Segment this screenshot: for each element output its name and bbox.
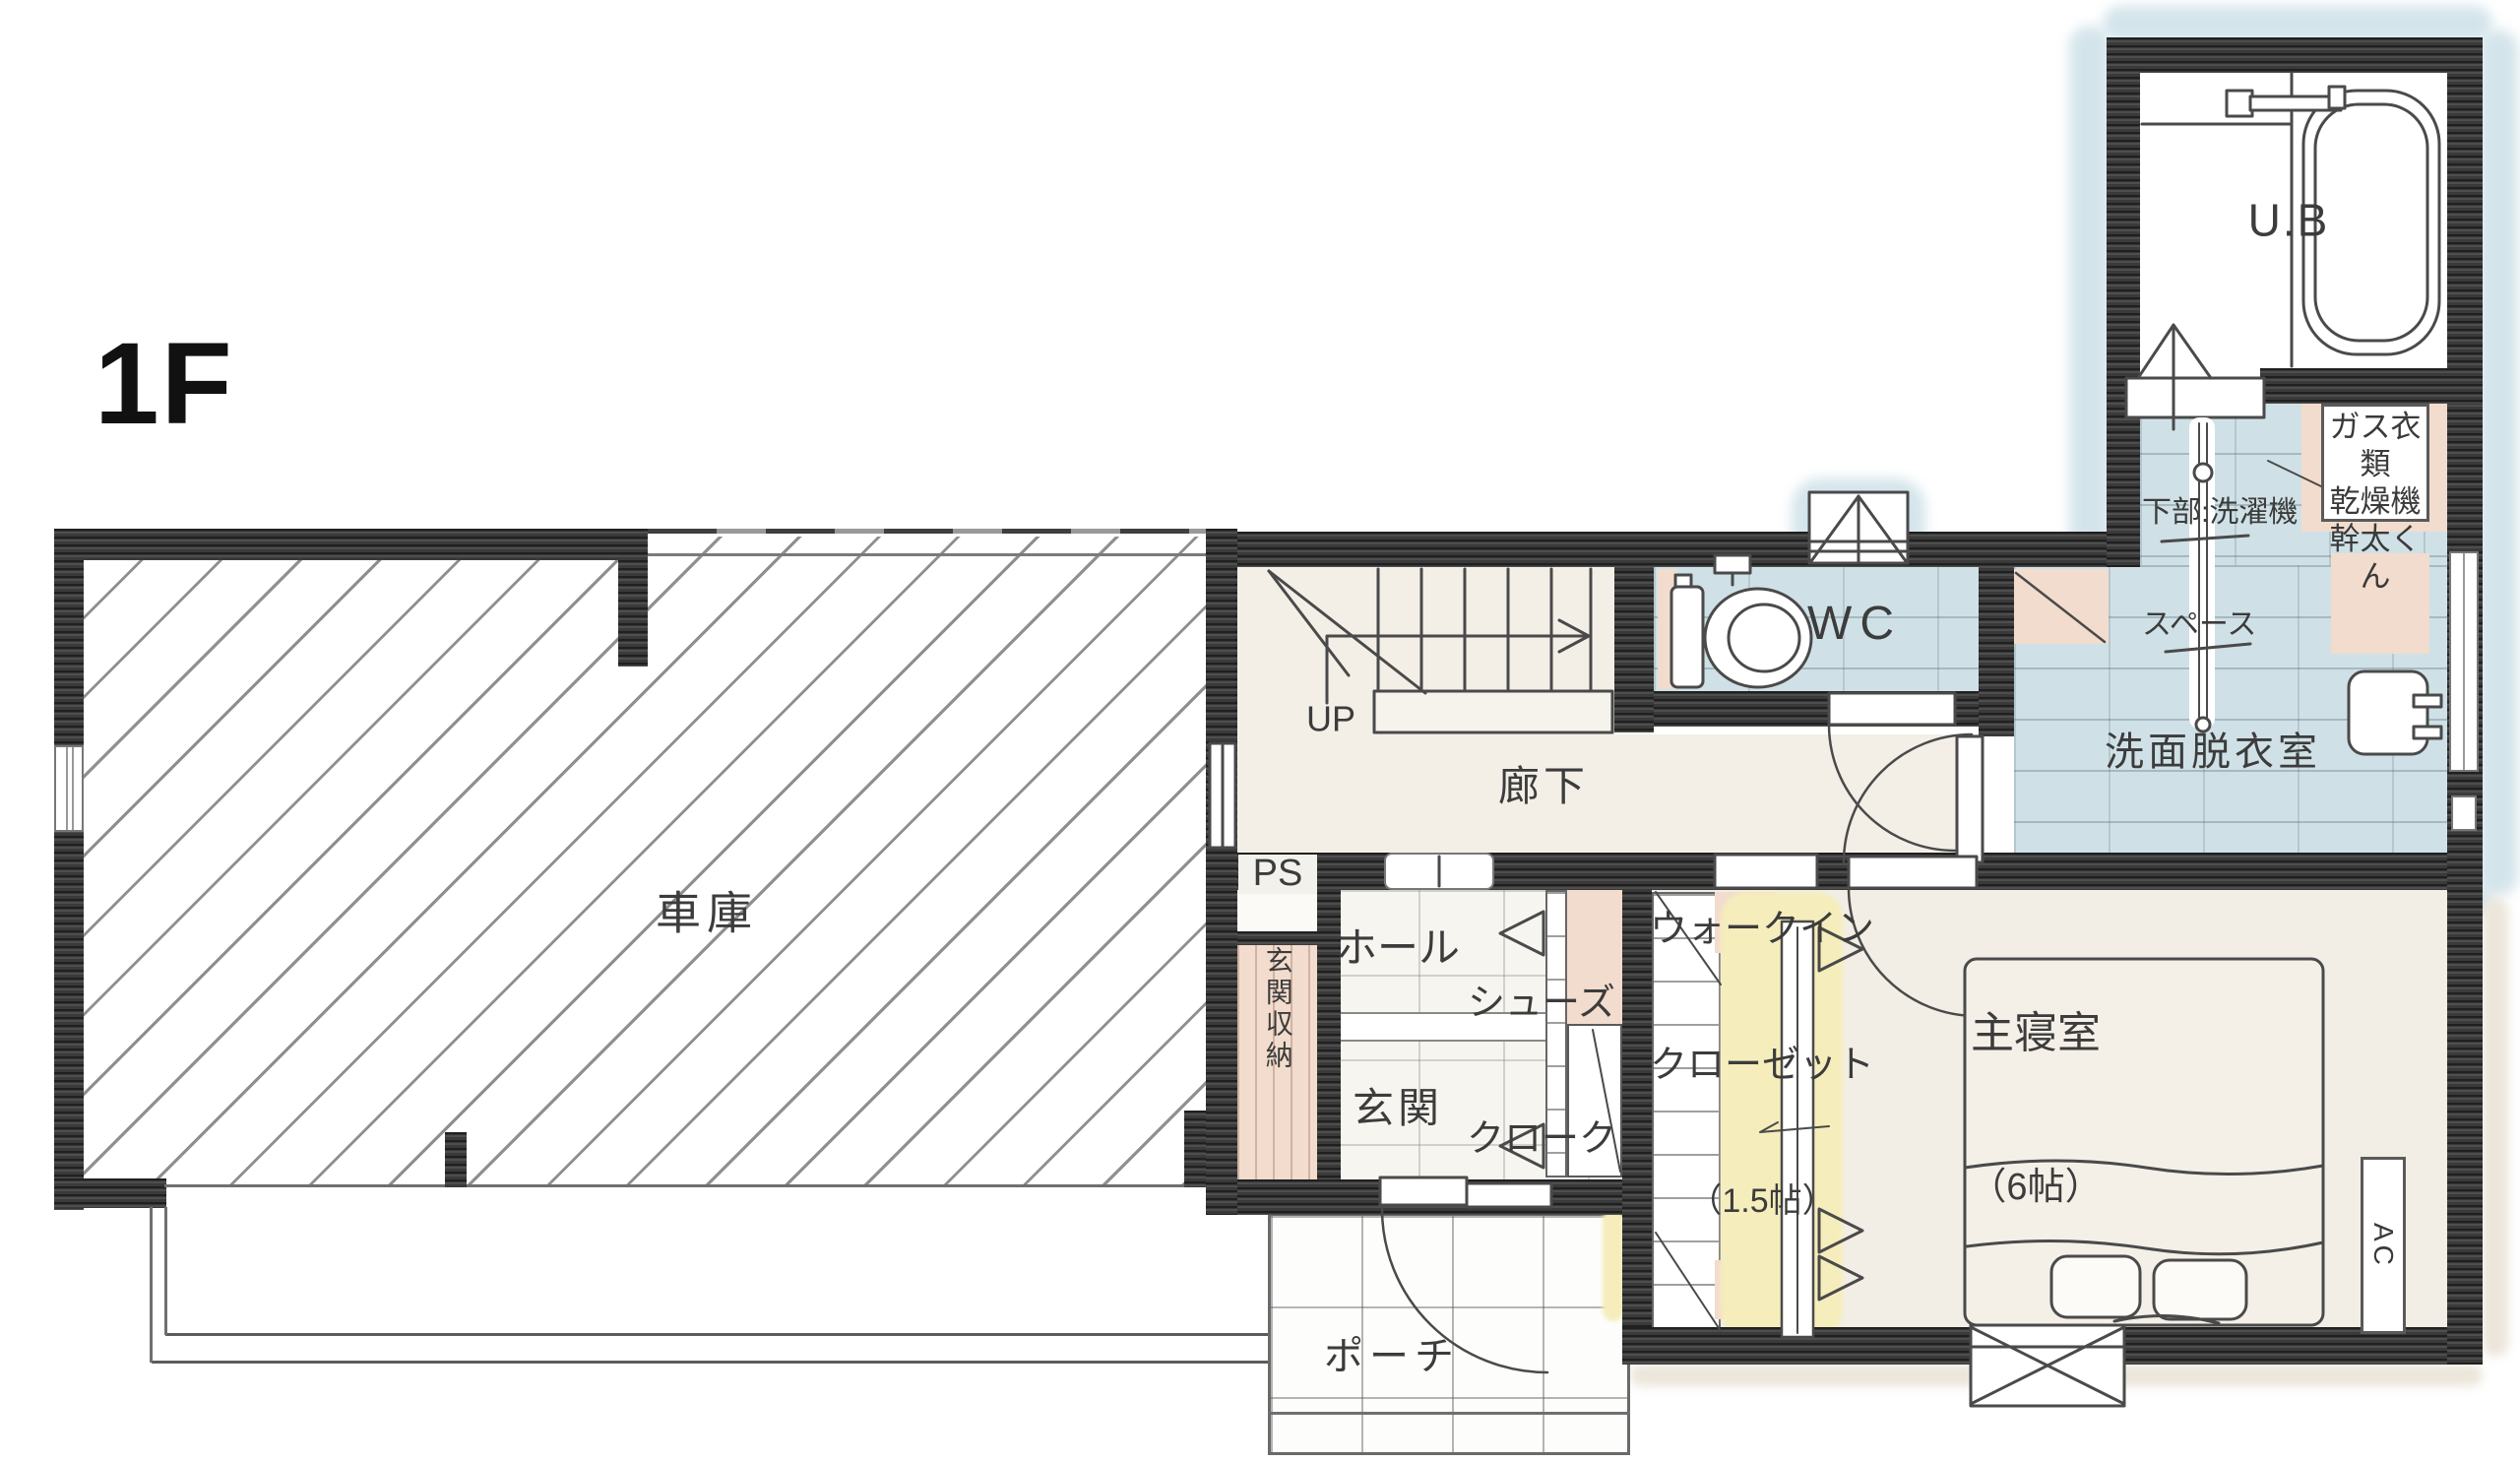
laundry-note-line2: スペース xyxy=(2142,606,2298,644)
bedroom-size: （6帖） xyxy=(1969,1162,2102,1213)
room-label-shoe-closet: シューズ クローク xyxy=(1467,890,1616,1252)
dryer-label-line1: ガス衣類 xyxy=(2324,409,2426,483)
watercolor-bath-top xyxy=(2103,6,2492,41)
driveway-line-v1 xyxy=(150,1207,153,1363)
south-wall xyxy=(1622,1327,2483,1365)
laundry-space-note: 下部:洗濯機 スペース xyxy=(2142,419,2298,719)
room-label-corridor: 廊下 xyxy=(1498,762,1589,811)
bath-right-wall xyxy=(2447,37,2483,404)
driveway-line-v2 xyxy=(164,1207,167,1335)
ps-right-wall xyxy=(1317,853,1341,1179)
dryer-label-line2: 乾燥機 xyxy=(2324,483,2426,521)
dryer-unit: ガス衣類 乾燥機 幹太くん xyxy=(2321,404,2429,522)
watercolor-bottom-wall xyxy=(1630,1365,2483,1386)
watercolor-bath-left xyxy=(2069,26,2110,565)
dryer-label-line3: 幹太くん xyxy=(2324,521,2426,596)
garage-top-pillar xyxy=(618,529,648,667)
wc-bottom-wall xyxy=(1654,691,1981,727)
stairs-floor xyxy=(1237,565,1614,736)
washroom-east-window2 xyxy=(2451,795,2477,831)
watercolor-right-low xyxy=(2483,898,2508,1357)
garage-right-wall xyxy=(1206,529,1237,1215)
ac-unit: AC xyxy=(2361,1157,2406,1334)
bath-bottom-wall xyxy=(2260,368,2483,404)
ac-label: AC xyxy=(2367,1223,2399,1269)
room-label-wc: WC xyxy=(1807,596,1902,653)
bath-top-wall xyxy=(2107,37,2483,73)
wic-size: （1.5帖） xyxy=(1650,1178,1874,1224)
wic-divider-wall xyxy=(1622,853,1652,1365)
porch-step-line xyxy=(1268,1412,1630,1415)
shoe-closet-line2: クローク xyxy=(1467,1116,1616,1162)
garage-left-window xyxy=(54,745,84,832)
ps-divider xyxy=(1237,931,1317,945)
room-label-entrance-storage: 玄関収納 xyxy=(1261,946,1294,1072)
room-label-hall: ホール xyxy=(1336,923,1460,973)
floor-plan-canvas: ガス衣類 乾燥機 幹太くん AC xyxy=(0,0,2520,1462)
driveway-line-1 xyxy=(165,1333,1268,1336)
east-wall xyxy=(2447,402,2483,1365)
room-label-garage: 車庫 xyxy=(656,886,758,940)
room-label-wic: ウォークイン クローゼット （1.5帖） xyxy=(1650,816,1874,1314)
watercolor-right xyxy=(2479,30,2518,896)
room-label-bath: U.B xyxy=(2248,193,2330,247)
room-label-porch: ポーチ xyxy=(1324,1333,1460,1380)
corridor-hall-opening xyxy=(1384,853,1494,890)
garage-door-opening-line xyxy=(164,1184,1186,1187)
garage-top-opening-line xyxy=(648,529,1206,534)
room-label-ps: PS xyxy=(1253,852,1303,897)
garage-top-wall xyxy=(54,529,647,560)
shoe-closet-line1: シューズ xyxy=(1467,981,1616,1026)
garage-bottom-pillar xyxy=(445,1132,467,1187)
laundry-note-line1: 下部:洗濯機 xyxy=(2142,494,2298,532)
room-label-entrance: 玄関 xyxy=(1353,1084,1443,1133)
stairs-up-label: UP xyxy=(1306,697,1355,739)
garage-top-opening-line2 xyxy=(648,553,1206,556)
garage-bottom-right-corner xyxy=(1184,1111,1208,1187)
room-label-bedroom: 主寝室 （6帖） xyxy=(1969,906,2102,1315)
garage-left-wall xyxy=(54,529,84,1210)
garage-bottom-left-corner xyxy=(54,1178,166,1208)
wic-line2: クローゼット xyxy=(1650,1043,1874,1088)
washroom-left-wall xyxy=(1979,532,2014,736)
bath-left-wall xyxy=(2107,37,2140,567)
washroom-corner-cabinet xyxy=(2014,569,2109,644)
wc-wall-strip xyxy=(1658,569,1677,689)
stair-wc-divider xyxy=(1614,532,1654,732)
driveway-line-2 xyxy=(152,1361,1268,1364)
washroom-east-window xyxy=(2449,551,2479,772)
floor-title: 1F xyxy=(94,317,234,451)
bedroom-name: 主寝室 xyxy=(1969,1008,2102,1059)
wic-line1: ウォークイン xyxy=(1650,907,1874,952)
room-label-washroom: 洗面脱衣室 xyxy=(2105,729,2321,776)
